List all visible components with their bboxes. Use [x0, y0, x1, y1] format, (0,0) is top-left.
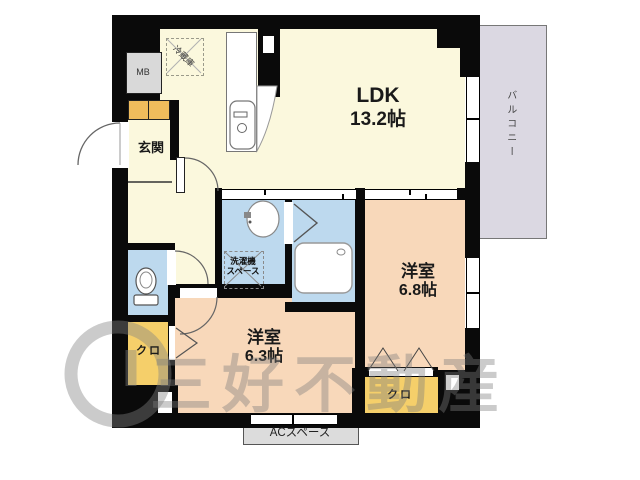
window-tick — [466, 292, 480, 294]
shoe-cabinet-divider — [148, 100, 149, 120]
toilet-floor — [128, 250, 168, 315]
sliding-door-tick — [409, 189, 411, 195]
watermark-text: 三好不動産 — [150, 334, 510, 424]
ldk-label: LDK 13.2帖 — [318, 84, 438, 131]
sliding-door-tick — [264, 189, 266, 195]
sliding-door-ldk-washroom — [222, 189, 356, 200]
wall-ldk-corner — [457, 188, 480, 200]
bathroom-floor — [292, 197, 355, 302]
entrance-label: 玄関 — [126, 140, 176, 155]
bedroom63-door-opening — [180, 288, 217, 298]
wall-right-68-upper — [465, 198, 480, 258]
sliding-door-tick — [342, 194, 344, 200]
meter-box-label: MB — [126, 52, 160, 92]
bedroom-right-size: 6.8帖 — [368, 282, 468, 301]
wall-toilet-bottom — [128, 315, 175, 322]
ldk-door-leaf — [176, 157, 185, 193]
floorplan: LDK 13.2帖 洋室 6.8帖 洋室 6.3帖 玄関 バルコニー MB 冷蔵… — [0, 0, 640, 480]
wall-top — [120, 15, 480, 29]
ldk-size: 13.2帖 — [318, 109, 438, 131]
refrigerator-text: 冷蔵庫 — [171, 43, 196, 68]
kitchen-wall-notch — [263, 36, 274, 53]
ldk-name: LDK — [318, 84, 438, 109]
refrigerator-label: 冷蔵庫 — [166, 38, 202, 74]
bedroom-right-name: 洋室 — [368, 262, 468, 282]
sliding-door-tick — [425, 194, 427, 200]
kitchen-counter — [226, 32, 257, 152]
window-ldk — [466, 77, 480, 162]
wall-bath-bottom — [285, 302, 365, 312]
washer-line2: スペース — [221, 266, 265, 276]
toilet-door-opening — [167, 250, 176, 285]
washer-space-label: 洗濯機 スペース — [221, 256, 265, 276]
ac-space-label: ACスペース — [243, 423, 357, 443]
balcony-label: バルコニー — [504, 90, 516, 160]
bedroom-right-label: 洋室 6.8帖 — [368, 262, 468, 301]
washer-line1: 洗濯機 — [221, 256, 265, 266]
shoe-cabinet — [128, 100, 170, 120]
window-tick — [466, 118, 480, 120]
sliding-door-ldk-bedroom68 — [365, 189, 457, 200]
wall-right-upper — [460, 29, 480, 77]
bathroom-door-opening — [284, 202, 293, 244]
